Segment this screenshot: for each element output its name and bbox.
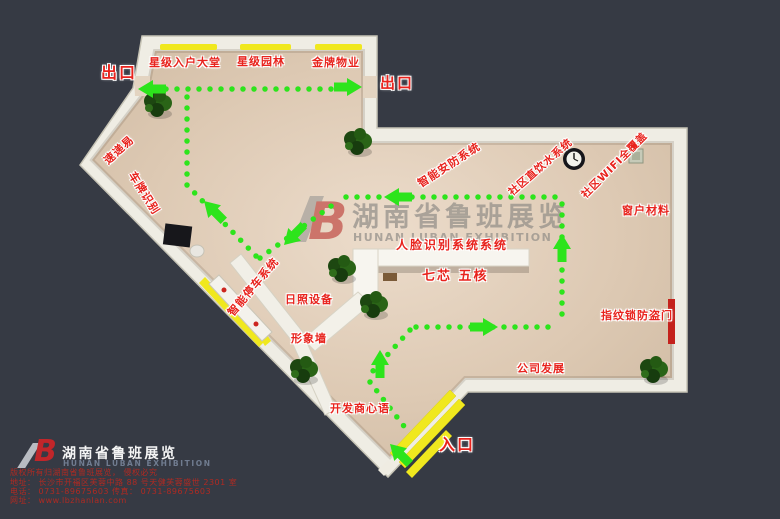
label-fingerprint-lock: 指纹锁防盗门 bbox=[601, 310, 673, 321]
watermark-logo-letter: B bbox=[308, 192, 348, 252]
desk bbox=[163, 223, 192, 247]
label-star-lobby: 星级入户大堂 bbox=[149, 57, 221, 68]
label-company-growth: 公司发展 bbox=[517, 363, 565, 374]
label-gold-property: 金牌物业 bbox=[312, 57, 360, 68]
footer-website: 网址： www.lbzhanlan.com bbox=[10, 495, 127, 506]
chair bbox=[190, 245, 204, 257]
label-developer-words: 开发商心语 bbox=[330, 403, 390, 414]
label-star-garden: 星级园林 bbox=[237, 56, 285, 67]
label-image-wall: 形象墙 bbox=[291, 333, 327, 344]
floor-plan-canvas: B 湖南省鲁班展览 HUNAN LUBAN EXHIBITION 出口 出口 入… bbox=[0, 0, 780, 519]
top-wall-light-strips bbox=[160, 44, 362, 50]
label-exit-right: 出口 bbox=[380, 76, 414, 91]
luban-logo: B bbox=[16, 442, 62, 470]
watermark-cn-text: 湖南省鲁班展览 bbox=[352, 201, 569, 233]
label-seven-core: 七芯 五核 bbox=[422, 270, 489, 283]
logo-letter: B bbox=[34, 437, 57, 467]
label-sunshine-device: 日照设备 bbox=[285, 294, 333, 305]
label-exit-left: 出口 bbox=[101, 65, 137, 81]
label-entrance: 入口 bbox=[439, 437, 475, 453]
label-window-material: 窗户材料 bbox=[622, 205, 670, 216]
label-face-recognition: 人脸识别系统系统 bbox=[396, 239, 508, 251]
footer-brand: B 湖南省鲁班展览 HUNAN LUBAN EXHIBITION 版权所有归湖南… bbox=[0, 438, 320, 519]
